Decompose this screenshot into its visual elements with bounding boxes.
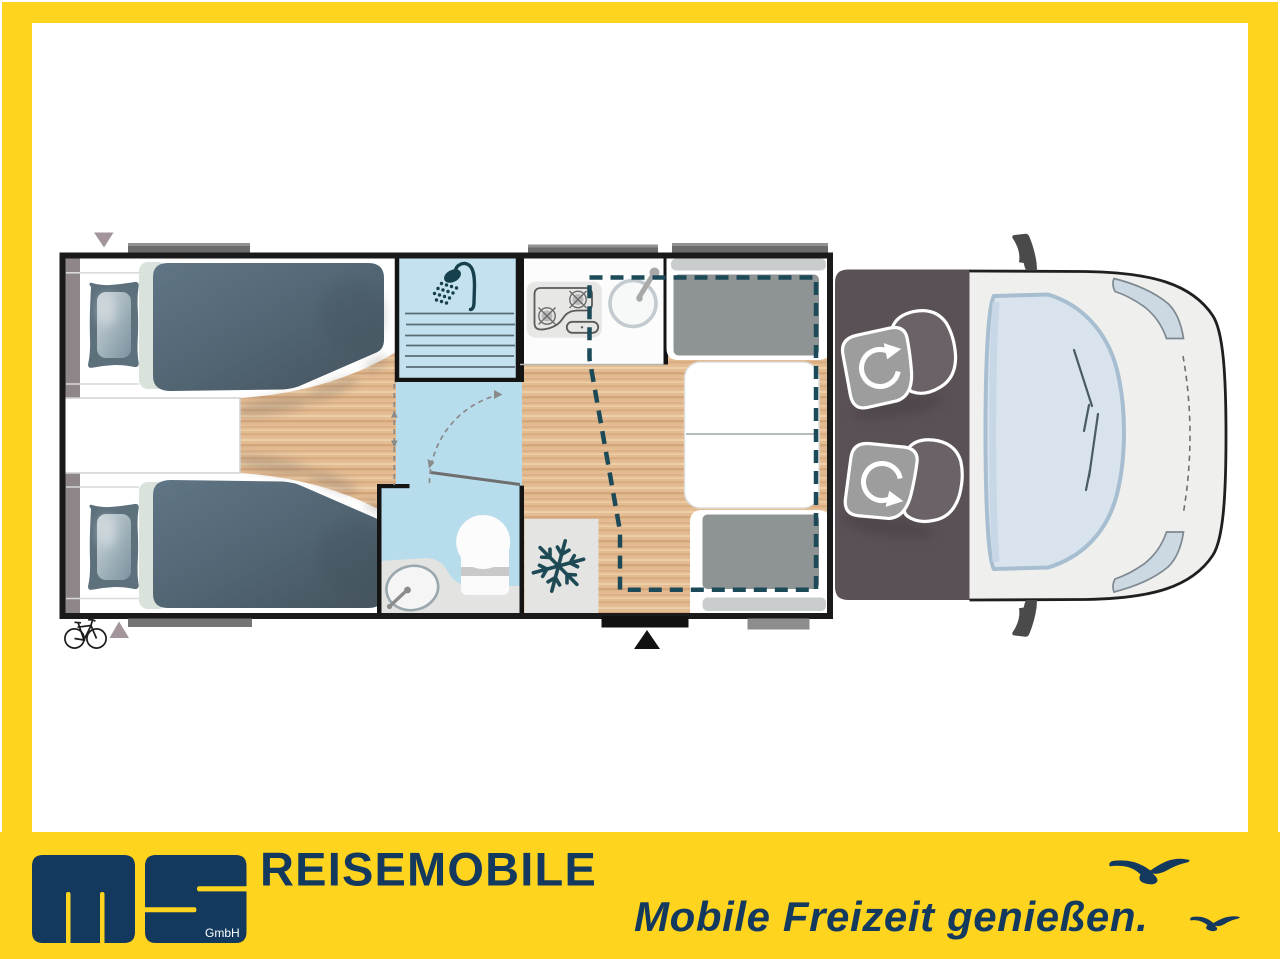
svg-text:Mobile Freizeit genießen.: Mobile Freizeit genießen. xyxy=(634,893,1148,940)
svg-text:GmbH: GmbH xyxy=(205,926,240,940)
svg-text:REISEMOBILE: REISEMOBILE xyxy=(260,843,597,896)
